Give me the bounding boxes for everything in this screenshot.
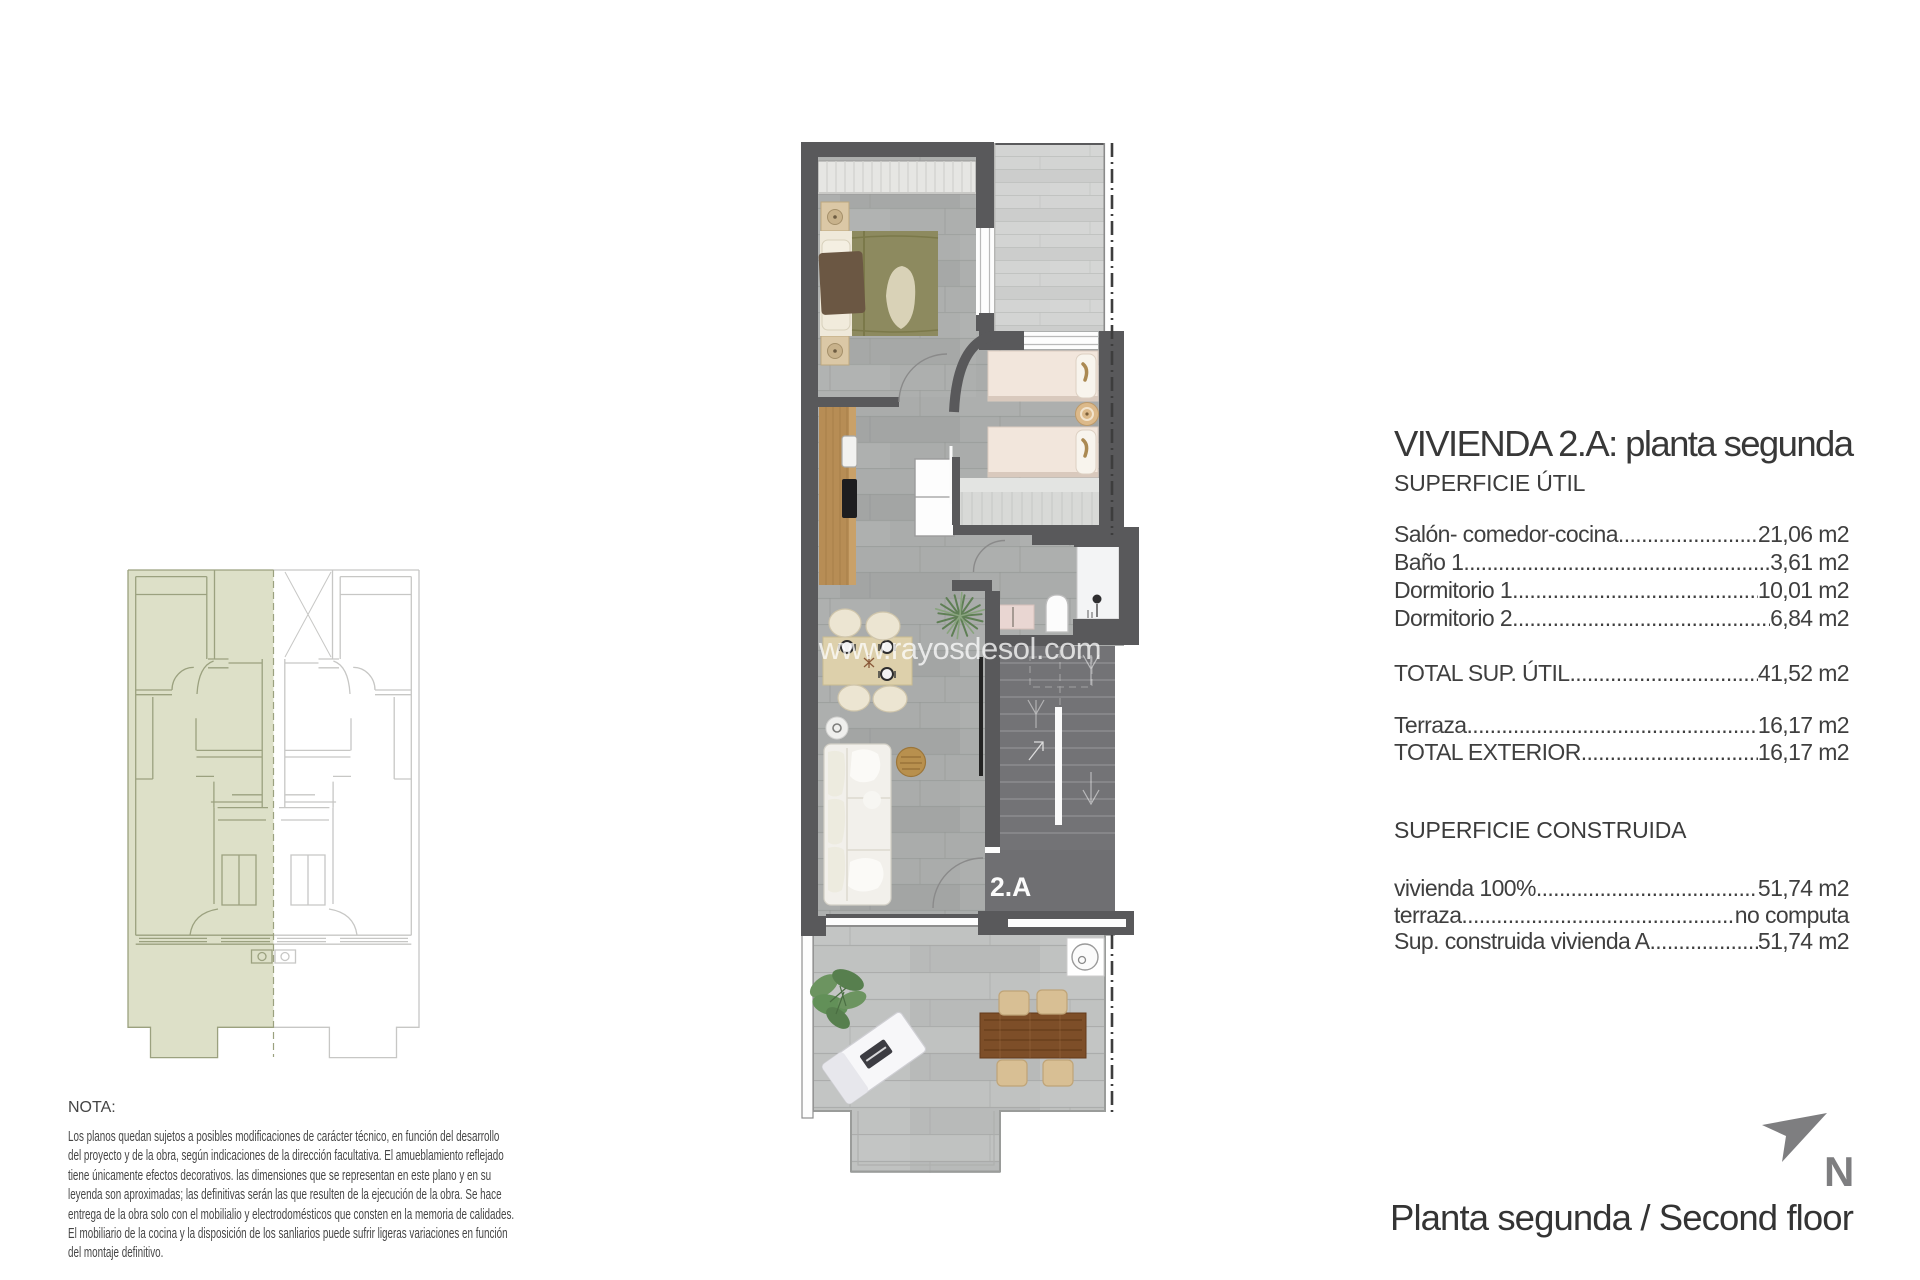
svg-text:2.A: 2.A — [990, 872, 1031, 902]
svg-text:N: N — [1824, 1148, 1854, 1195]
svg-text:www.rayosdesol.com: www.rayosdesol.com — [818, 631, 1101, 666]
